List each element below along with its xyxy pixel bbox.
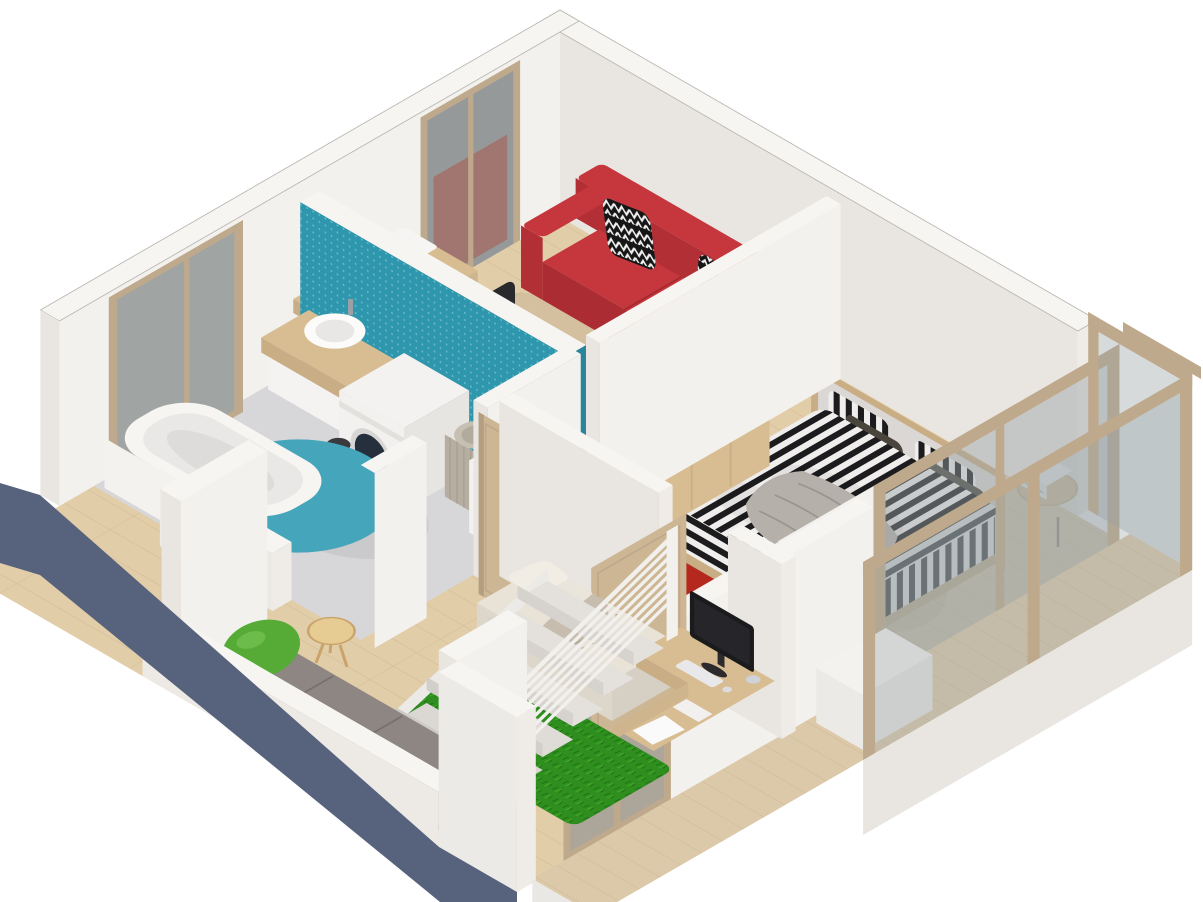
faucet bbox=[348, 299, 353, 315]
floor-plan-render bbox=[0, 0, 1203, 902]
isometric-floorplan-svg bbox=[0, 0, 1203, 902]
